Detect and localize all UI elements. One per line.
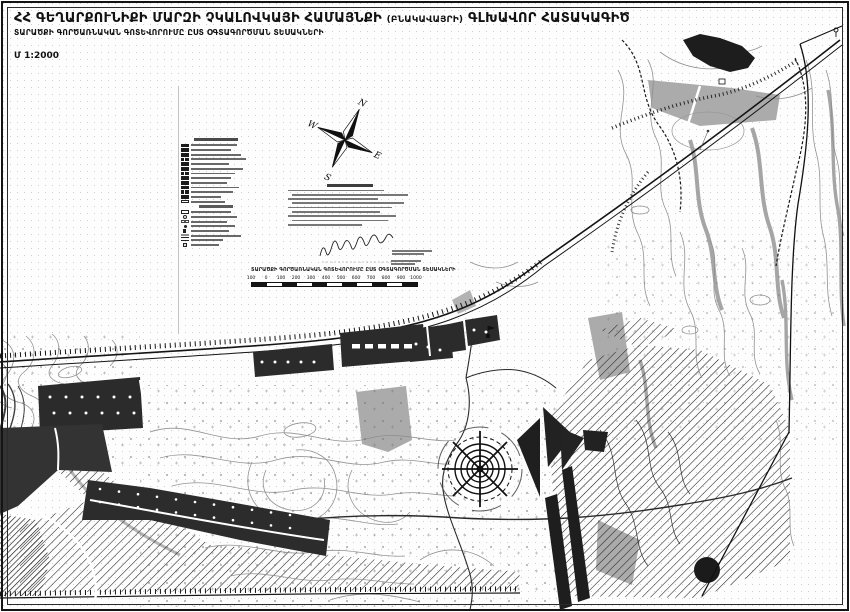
scalebar-segment [342, 283, 357, 286]
notes-text-line [288, 198, 378, 200]
legend-swatch [181, 167, 189, 171]
legend-subheading [199, 205, 233, 208]
legend-swatch [181, 240, 189, 241]
legend-label-bar [191, 201, 225, 203]
scalebar-bar [251, 282, 418, 287]
legend-swatch [181, 144, 189, 148]
signature-annotations [392, 250, 436, 257]
legend-row [181, 243, 251, 248]
notes-text-line [292, 220, 388, 222]
legend-swatch [181, 220, 189, 224]
scalebar-segment [312, 283, 327, 286]
notes-block [288, 184, 412, 228]
legend-swatch [181, 176, 189, 180]
compass-w-label: W [306, 119, 319, 132]
scalebar-side-line [391, 260, 421, 262]
scalebar: ՏԱՐԱԾՔԻ ԳՈՐԾԱՌՆԱԿԱՆ ԳՈՏԵՎՈՐՈՒՄԸ ԸՍՏ ՕԳՏԱ… [251, 267, 421, 287]
scalebar-tick: 500 [337, 276, 346, 281]
legend-label-bar [191, 211, 231, 213]
legend-swatch [183, 243, 187, 247]
legend-label-bar [191, 158, 246, 160]
legend-label-bar [191, 235, 241, 237]
legend-row [181, 199, 251, 204]
sheet-title: ՀՀ ԳԵՂԱՐՔՈՒՆԻՔԻ ՄԱՐԶԻ ՉԿԱԼՈՎԿԱՅԻ ՀԱՄԱՅՆՔ… [14, 11, 574, 26]
scalebar-side-notes [391, 260, 427, 266]
scalebar-tick-labels: 10001002003004005006007008009001000 [251, 276, 416, 282]
legend-label-bar [191, 154, 241, 156]
scalebar-tick: 1000 [410, 276, 421, 281]
legend-label-bar [191, 177, 231, 179]
scalebar-tick: 700 [367, 276, 376, 281]
scalebar-segment [252, 283, 267, 286]
notes-heading [327, 184, 373, 187]
legend-swatch [184, 225, 187, 228]
compass-rose: N E S W [288, 82, 400, 199]
scalebar-segment [402, 283, 417, 286]
scalebar-segment [387, 283, 402, 286]
legend-swatch [181, 153, 189, 157]
legend-swatch [181, 200, 189, 204]
compass-e-label: E [371, 150, 382, 162]
legend-label-bar [191, 230, 229, 232]
legend-swatch [181, 210, 189, 214]
circular-plaza [442, 431, 518, 507]
title-main: ՀՀ ԳԵՂԱՐՔՈՒՆԻՔԻ ՄԱՐԶԻ ՉԿԱԼՈՎԿԱՅԻ ՀԱՄԱՅՆՔ… [14, 11, 382, 26]
signature-note-line [392, 250, 432, 252]
legend-swatch [181, 162, 189, 166]
notes-text-line [288, 224, 362, 226]
notes-text-line [292, 194, 408, 196]
legend-label-bar [191, 173, 235, 175]
scalebar-segment [282, 283, 297, 286]
legend [179, 136, 253, 248]
notes-lines [288, 190, 412, 226]
legend-swatch [181, 181, 189, 185]
legend-label-bar [191, 187, 239, 189]
legend-label-bar [191, 196, 221, 198]
scalebar-tick: 100 [247, 276, 256, 281]
scalebar-tick: 600 [352, 276, 361, 281]
legend-swatch [181, 148, 189, 152]
legend-symbol-entries [181, 210, 251, 248]
legend-swatch [183, 229, 186, 233]
compass-s-label: S [322, 172, 332, 184]
scalebar-tick: 0 [265, 276, 268, 281]
notes-text-line [288, 190, 384, 192]
legend-label-bar [191, 239, 223, 241]
notes-text-line [292, 211, 380, 213]
title-paren: (ԲՆԱԿԱՎԱՅՐԻ) [387, 15, 464, 25]
legend-label-bar [191, 216, 237, 218]
legend-label-bar [191, 225, 235, 227]
scalebar-caption: ՏԱՐԱԾՔԻ ԳՈՐԾԱՌՆԱԿԱՆ ԳՈՏԵՎՈՐՈՒՄԸ ԸՍՏ ՕԳՏԱ… [251, 267, 421, 273]
scalebar-segment [297, 283, 312, 286]
legend-swatch [181, 186, 189, 190]
legend-swatch [181, 158, 189, 162]
scalebar-tick: 900 [397, 276, 406, 281]
signature-note-line [392, 253, 424, 255]
legend-label-bar [191, 163, 229, 165]
legend-label-bar [191, 149, 231, 151]
scalebar-side-line [391, 263, 415, 265]
compass-n-label: N [355, 97, 368, 110]
notes-text-line [288, 207, 392, 209]
scalebar-tick: 100 [277, 276, 286, 281]
legend-label-bar [191, 191, 233, 193]
legend-label-bar [191, 244, 219, 246]
scalebar-tick: 300 [307, 276, 316, 281]
scale-label: Մ 1:2000 [14, 51, 574, 61]
scalebar-segment [327, 283, 342, 286]
signature-scribble [320, 234, 393, 262]
legend-label-bar [191, 221, 227, 223]
notes-text-line [292, 202, 404, 204]
notes-text-line [288, 215, 396, 217]
scalebar-segment [267, 283, 282, 286]
scalebar-tick: 400 [322, 276, 331, 281]
legend-swatch [181, 172, 189, 176]
map-artwork: N E S W [0, 0, 850, 612]
legend-label-bar [191, 144, 237, 146]
sheet-subtitle: ՏԱՐԱԾՔԻ ԳՈՐԾԱՌՆԱԿԱՆ ԳՈՏԵՎՈՐՈՒՄԸ ԸՍՏ ՕԳՏԱ… [14, 28, 574, 37]
title-block: ՀՀ ԳԵՂԱՐՔՈՒՆԻՔԻ ՄԱՐԶԻ ՉԿԱԼՈՎԿԱՅԻ ՀԱՄԱՅՆՔ… [14, 11, 574, 61]
legend-label-bar [191, 182, 227, 184]
masterplan-sheet: N E S W ՀՀ ԳԵՂԱՐՔՈՒՆԻՔԻ ՄԱՐԶԻ ՉԿԱԼՈՎԿԱՅԻ… [0, 0, 850, 612]
scalebar-segment [357, 283, 372, 286]
legend-swatch [181, 234, 189, 238]
scalebar-tick: 200 [292, 276, 301, 281]
legend-swatch [181, 195, 189, 199]
legend-zone-entries [181, 143, 251, 204]
legend-heading [194, 138, 238, 141]
legend-swatch [181, 190, 189, 194]
legend-swatch [183, 215, 187, 219]
legend-label-bar [191, 168, 243, 170]
title-tail: ԳԼԽԱՎՈՐ ՀԱՏԱԿԱԳԻԾ [468, 11, 630, 26]
scalebar-tick: 800 [382, 276, 391, 281]
scalebar-segment [372, 283, 387, 286]
